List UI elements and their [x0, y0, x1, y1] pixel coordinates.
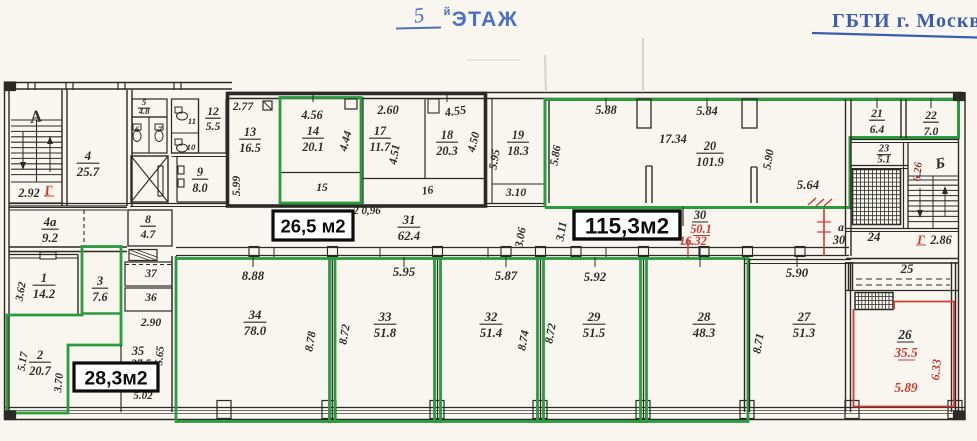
svg-text:16: 16 — [421, 183, 434, 198]
svg-text:2.86: 2.86 — [929, 233, 952, 247]
svg-text:28,3м2: 28,3м2 — [84, 368, 147, 390]
svg-text:33: 33 — [378, 310, 392, 324]
svg-text:62.4: 62.4 — [398, 229, 421, 243]
svg-text:15: 15 — [316, 181, 328, 194]
svg-text:6.26: 6.26 — [911, 161, 925, 182]
svg-text:32: 32 — [484, 310, 498, 324]
svg-text:4.7: 4.7 — [140, 228, 157, 241]
svg-text:21: 21 — [870, 107, 883, 120]
svg-text:16.5: 16.5 — [239, 141, 260, 155]
svg-text:4а: 4а — [43, 215, 57, 229]
svg-text:36: 36 — [144, 291, 157, 304]
svg-text:6.33: 6.33 — [928, 358, 944, 380]
svg-text:28: 28 — [697, 310, 711, 324]
svg-text:1: 1 — [41, 271, 47, 285]
svg-text:5.89: 5.89 — [894, 380, 918, 395]
svg-text:14.2: 14.2 — [33, 287, 56, 301]
svg-text:115,3м2: 115,3м2 — [585, 214, 669, 239]
svg-text:22: 22 — [924, 109, 937, 122]
svg-text:7.6: 7.6 — [92, 290, 108, 304]
svg-text:8: 8 — [145, 213, 151, 226]
svg-text:35: 35 — [131, 344, 144, 358]
svg-text:5.87: 5.87 — [495, 269, 518, 283]
svg-text:34: 34 — [248, 308, 262, 322]
svg-text:4.8: 4.8 — [138, 106, 151, 116]
svg-text:26,5 м2: 26,5 м2 — [280, 216, 345, 237]
svg-text:51.8: 51.8 — [374, 326, 397, 340]
svg-text:6: 6 — [135, 124, 140, 134]
svg-text:18: 18 — [441, 128, 453, 142]
svg-text:26: 26 — [897, 327, 912, 342]
svg-text:30: 30 — [832, 233, 845, 247]
svg-text:ЭТАЖ: ЭТАЖ — [452, 8, 519, 31]
svg-text:17: 17 — [374, 124, 387, 138]
svg-text:20.7: 20.7 — [28, 364, 51, 378]
svg-text:12: 12 — [207, 105, 219, 118]
svg-text:7: 7 — [158, 124, 163, 134]
svg-text:5.99: 5.99 — [230, 176, 243, 196]
svg-text:31: 31 — [402, 213, 416, 227]
svg-text:9.2: 9.2 — [42, 231, 59, 245]
svg-text:5.90: 5.90 — [786, 266, 809, 280]
svg-text:23: 23 — [878, 144, 889, 155]
svg-text:8.88: 8.88 — [242, 269, 265, 283]
svg-text:27: 27 — [797, 310, 811, 324]
svg-text:13: 13 — [244, 125, 256, 139]
svg-text:6.4: 6.4 — [870, 123, 885, 136]
svg-text:24: 24 — [867, 230, 881, 244]
svg-text:19: 19 — [512, 128, 524, 142]
svg-text:30: 30 — [693, 208, 706, 222]
svg-text:5.95: 5.95 — [393, 265, 416, 279]
svg-text:51.3: 51.3 — [793, 326, 816, 340]
svg-text:20.3: 20.3 — [435, 144, 457, 158]
svg-text:10: 10 — [187, 142, 196, 152]
svg-text:20: 20 — [703, 139, 716, 153]
svg-text:5.64: 5.64 — [797, 178, 820, 192]
svg-text:2.60: 2.60 — [376, 103, 398, 117]
svg-text:2.90: 2.90 — [140, 316, 161, 329]
svg-text:7.0: 7.0 — [924, 125, 939, 138]
svg-text:20.1: 20.1 — [301, 140, 323, 154]
svg-text:48.3: 48.3 — [692, 326, 716, 340]
svg-text:101.9: 101.9 — [696, 155, 723, 169]
svg-text:18.3: 18.3 — [507, 144, 528, 158]
svg-text:3: 3 — [96, 274, 103, 288]
svg-text:35.5: 35.5 — [893, 345, 918, 360]
svg-text:14: 14 — [307, 124, 319, 138]
svg-text:29: 29 — [587, 310, 601, 324]
svg-text:9: 9 — [197, 165, 203, 179]
svg-text:3.10: 3.10 — [505, 186, 526, 199]
svg-text:4.56: 4.56 — [300, 108, 323, 122]
svg-text:5.92: 5.92 — [584, 270, 607, 284]
svg-text:37: 37 — [144, 267, 158, 280]
svg-text:2: 2 — [36, 348, 43, 362]
svg-text:2 0,96: 2 0,96 — [352, 205, 381, 217]
svg-text:2.77: 2.77 — [232, 100, 254, 113]
svg-text:25: 25 — [900, 262, 914, 276]
svg-text:17.34: 17.34 — [659, 132, 686, 146]
svg-text:4: 4 — [84, 149, 92, 163]
svg-text:5.5: 5.5 — [206, 120, 221, 133]
svg-text:16.32: 16.32 — [679, 234, 706, 248]
svg-text:51.4: 51.4 — [480, 326, 503, 340]
svg-text:11: 11 — [188, 116, 196, 126]
svg-text:8.0: 8.0 — [192, 181, 207, 195]
svg-text:5.1: 5.1 — [878, 155, 891, 166]
svg-text:25.7: 25.7 — [76, 165, 100, 179]
svg-text:ГБТИ г. Москв: ГБТИ г. Москв — [832, 10, 977, 32]
svg-text:2.92: 2.92 — [17, 186, 39, 200]
svg-text:78.0: 78.0 — [244, 324, 267, 338]
svg-text:51.5: 51.5 — [583, 326, 606, 340]
svg-text:й: й — [444, 6, 451, 18]
svg-text:3.70: 3.70 — [52, 372, 66, 394]
